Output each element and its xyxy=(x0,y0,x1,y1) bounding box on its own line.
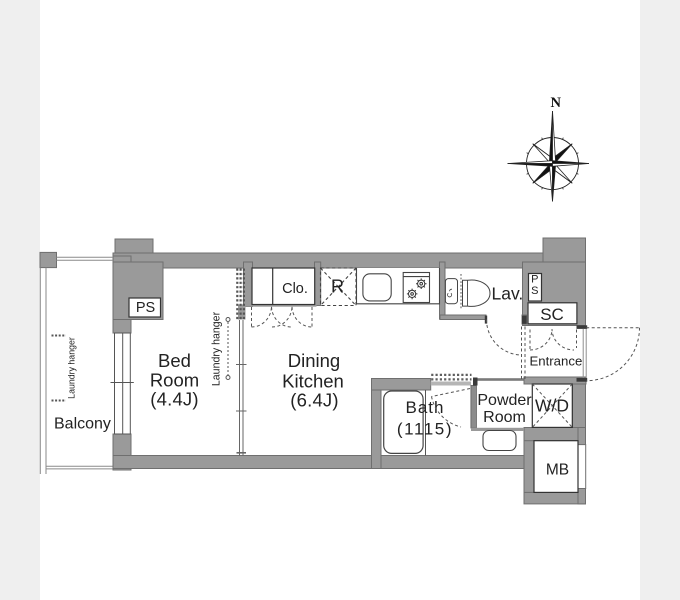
svg-text:S: S xyxy=(531,285,538,297)
svg-text:Laundry hanger: Laundry hanger xyxy=(67,337,77,399)
svg-text:Laundry hanger: Laundry hanger xyxy=(211,311,223,386)
svg-text:SC: SC xyxy=(540,305,564,324)
svg-text:(4.4J): (4.4J) xyxy=(150,389,199,410)
svg-text:Lav.: Lav. xyxy=(492,284,524,304)
svg-text:Entrance: Entrance xyxy=(530,353,583,368)
svg-text:(1115): (1115) xyxy=(397,420,453,439)
svg-text:Balcony: Balcony xyxy=(54,416,111,433)
svg-text:R: R xyxy=(331,277,344,297)
svg-text:N: N xyxy=(550,95,561,111)
svg-text:MB: MB xyxy=(546,462,569,479)
svg-text:Dining: Dining xyxy=(288,350,340,371)
svg-text:Kitchen: Kitchen xyxy=(282,370,344,391)
svg-text:W/D: W/D xyxy=(535,396,569,416)
svg-text:P: P xyxy=(531,274,538,286)
svg-text:Room: Room xyxy=(150,370,199,391)
svg-text:PS: PS xyxy=(136,300,155,316)
svg-text:Powder: Powder xyxy=(477,392,532,409)
svg-text:Room: Room xyxy=(483,409,526,426)
svg-text:Clo.: Clo. xyxy=(282,281,308,297)
svg-text:Bath: Bath xyxy=(406,398,445,417)
svg-text:Bed: Bed xyxy=(158,350,191,371)
svg-text:(6.4J): (6.4J) xyxy=(290,389,339,410)
